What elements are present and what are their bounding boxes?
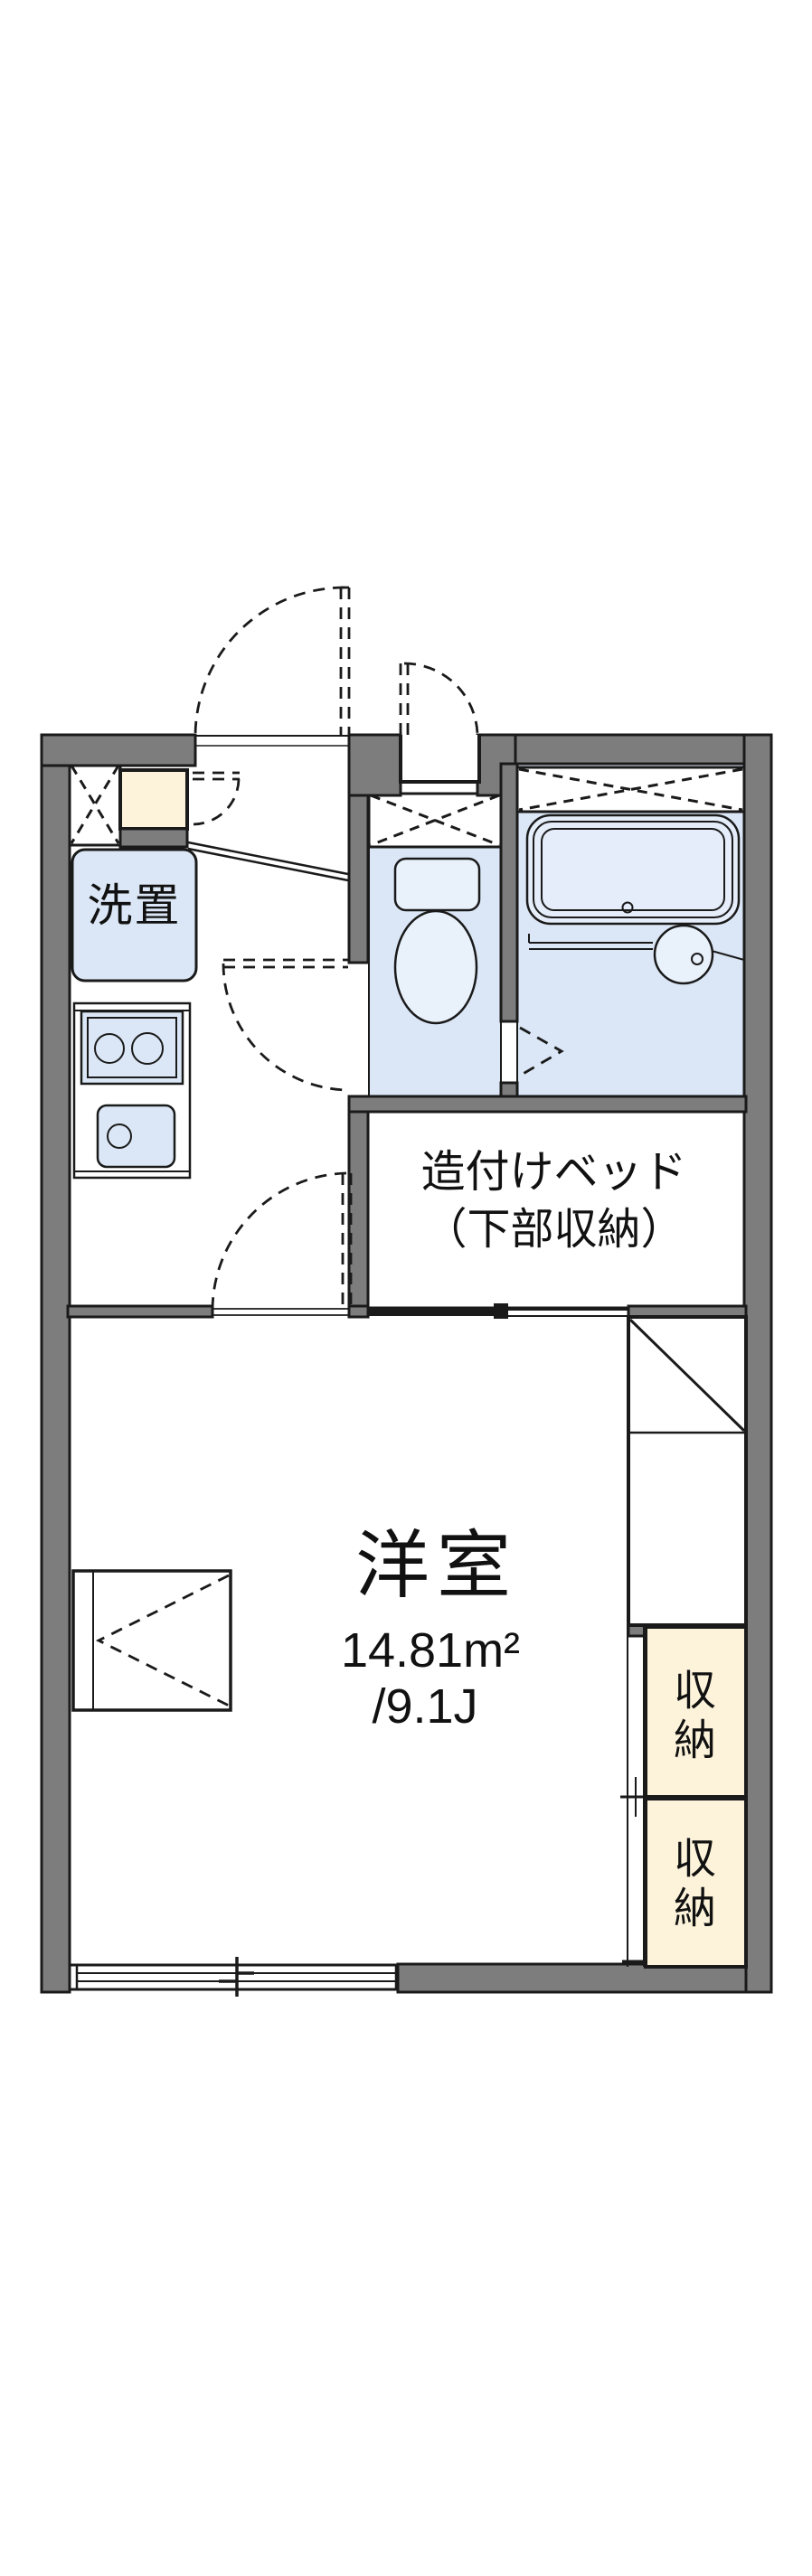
wall-left bbox=[42, 735, 70, 1992]
wall-south-of-wet-area bbox=[349, 1096, 746, 1112]
south-window bbox=[70, 1957, 398, 1997]
shoe-cabinet-door-leaf bbox=[193, 773, 240, 779]
stove-burner-right-icon bbox=[132, 1033, 163, 1064]
entry-utility bbox=[70, 764, 353, 1178]
entrance-door-leaf bbox=[341, 588, 349, 735]
wall-right bbox=[744, 735, 771, 1992]
sink-drain-icon bbox=[108, 1124, 131, 1148]
closet-block bbox=[628, 1317, 746, 1625]
wall-under-shoe-cabinet bbox=[120, 829, 187, 847]
built-in-bed-label: 造付けベッド bbox=[364, 1150, 744, 1196]
wall-top-right bbox=[515, 735, 744, 764]
interior-doors bbox=[212, 960, 351, 1315]
bathroom-floor bbox=[517, 764, 744, 1096]
wall-toilet-west bbox=[349, 795, 368, 963]
entrance bbox=[193, 588, 479, 824]
wall-room-north-post bbox=[349, 1306, 368, 1317]
room-door-threshold bbox=[212, 1309, 349, 1315]
room-door-swing-icon bbox=[212, 1173, 346, 1309]
room-name-label: 洋室 bbox=[256, 1528, 618, 1604]
bed-front-post bbox=[494, 1303, 508, 1319]
wall-top-mid bbox=[349, 735, 401, 795]
shoe-cabinet bbox=[120, 770, 187, 829]
wall-room-north-left bbox=[68, 1306, 212, 1317]
toilet-room bbox=[369, 794, 501, 1096]
stove-burner-left-icon bbox=[95, 1034, 124, 1063]
bed-front-edge bbox=[366, 1309, 496, 1316]
toilet-tank bbox=[395, 859, 479, 910]
storage-upper-label: 収納 bbox=[670, 1654, 722, 1781]
room-tatami-label: /9.1J bbox=[244, 1681, 606, 1732]
laundry-label: 洗置 bbox=[72, 882, 196, 929]
south-window-frame bbox=[70, 1965, 398, 1989]
bed-opening-threshold bbox=[508, 1310, 628, 1316]
toilet-door-swing-icon bbox=[223, 964, 350, 1090]
toilet-bowl bbox=[395, 911, 477, 1023]
shoe-cabinet-door-swing-icon bbox=[194, 779, 239, 824]
toilet-door-leaf bbox=[223, 960, 348, 967]
bathroom bbox=[517, 764, 744, 1096]
wall-toilet-bath bbox=[501, 764, 517, 1021]
wall-top-left bbox=[42, 735, 195, 766]
built-in-bed-sublabel: （下部収納） bbox=[364, 1208, 744, 1253]
niche-door-leaf bbox=[401, 663, 408, 735]
floor-plan-page: 洗置 造付けベッド （下部収納） 洋室 14.81m² /9.1J 収納 収納 bbox=[0, 0, 812, 2576]
genkan-step-edge bbox=[188, 842, 353, 881]
niche-door-swing-icon bbox=[404, 663, 477, 735]
pipe-space-box bbox=[70, 764, 120, 845]
floor-plan-canvas bbox=[0, 0, 812, 2576]
storage-lower-label: 収納 bbox=[670, 1822, 722, 1949]
room-area-label: 14.81m² bbox=[250, 1625, 611, 1676]
entrance-door-swing-icon bbox=[195, 588, 345, 735]
wash-basin bbox=[655, 926, 713, 983]
meter-box-niche bbox=[401, 735, 479, 782]
